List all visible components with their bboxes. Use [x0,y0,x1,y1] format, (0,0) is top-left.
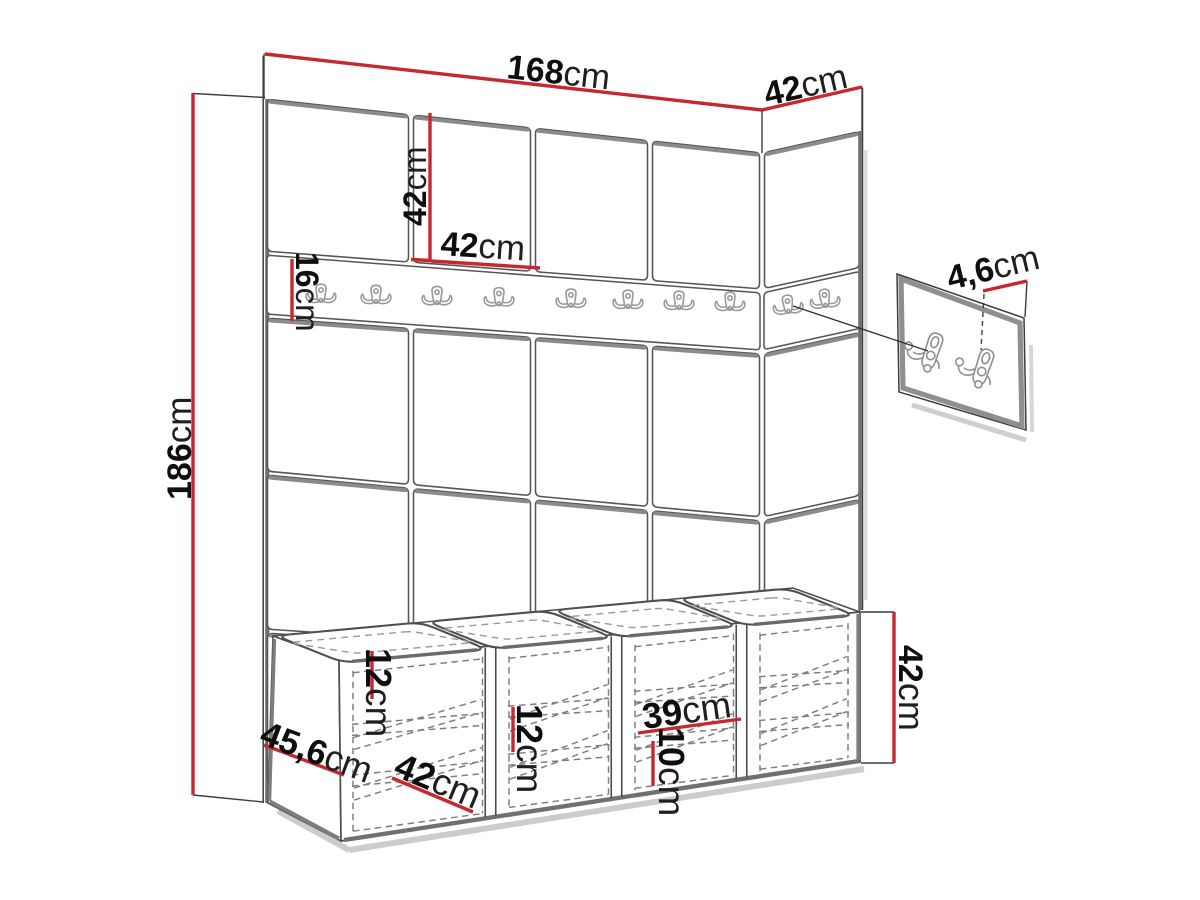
svg-text:42cm: 42cm [891,645,932,731]
svg-text:10cm: 10cm [651,727,692,816]
svg-text:42cm: 42cm [396,146,433,226]
svg-text:42cm: 42cm [439,224,526,268]
svg-text:16cm: 16cm [289,252,326,332]
svg-text:186cm: 186cm [160,397,199,500]
svg-text:12cm: 12cm [509,704,550,793]
svg-text:12cm: 12cm [358,648,399,737]
